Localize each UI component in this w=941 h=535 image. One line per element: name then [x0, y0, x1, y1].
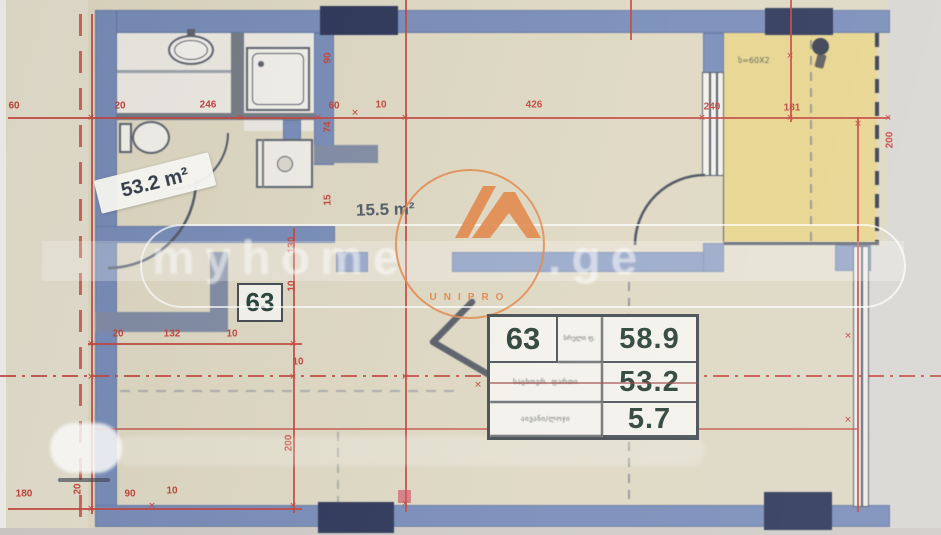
dimension-label: 60	[328, 101, 339, 112]
table-balcony-area-value: 5.7	[603, 403, 696, 437]
dimension-label: 74	[323, 121, 334, 132]
tick-mark: ✕	[289, 339, 297, 350]
dimension-labels: 6020246601042624018190741513010200201321…	[0, 0, 941, 535]
tick-mark: ✕	[87, 372, 95, 383]
tick-mark: ✕	[236, 113, 244, 124]
table-strike-line	[489, 382, 697, 384]
dimension-label: 90	[323, 52, 334, 63]
table-unit-sublabel: სრული ფ.	[558, 317, 603, 363]
dimension-label: 200	[885, 132, 896, 149]
dimension-label: 180	[16, 489, 33, 500]
table-total-area-value: 58.9	[603, 317, 696, 363]
table-unit-number: 63	[490, 317, 558, 363]
tick-mark: ✕	[87, 113, 95, 124]
tick-mark: ✕	[314, 113, 322, 124]
dimension-label: 426	[526, 100, 543, 111]
tick-mark: ✕	[401, 372, 409, 383]
area-table: 63 სრული ფ. 58.9 საცხოვრ. ფართი 53.2 აივ…	[487, 314, 699, 440]
tick-mark: ✕	[884, 113, 892, 124]
dimension-label: 60	[8, 101, 19, 112]
tick-mark: ✕	[289, 501, 297, 512]
tick-mark: ✕	[401, 113, 409, 124]
tick-mark: ✕	[351, 108, 359, 119]
tick-mark: ✕	[698, 113, 706, 124]
tick-mark: ✕	[786, 113, 794, 124]
dimension-label: 10	[375, 100, 386, 111]
dimension-label: 200	[284, 435, 295, 452]
dimension-label: 20	[114, 101, 125, 112]
dimension-label: 10	[166, 486, 177, 497]
tick-mark: ✕	[474, 380, 482, 391]
tick-mark: ✕	[87, 339, 95, 350]
dimension-label: 10	[292, 357, 303, 368]
tick-mark: ✕	[844, 331, 852, 342]
tick-mark: ✕	[87, 504, 95, 515]
table-balcony-area-label: აივანი/ლოჯი	[490, 403, 603, 437]
hand-underline-mark	[58, 478, 110, 482]
dimension-label: 240	[704, 102, 721, 113]
dimension-label: 246	[200, 100, 217, 111]
dimension-label: 15	[323, 194, 334, 205]
dimension-label: 10	[226, 329, 237, 340]
tick-mark: ✕	[401, 499, 409, 510]
tick-mark: ✕	[289, 372, 297, 383]
tick-mark: ✕	[786, 51, 794, 62]
dimension-label: 90	[124, 489, 135, 500]
tick-mark: ✕	[844, 415, 852, 426]
tick-mark: ✕	[148, 501, 156, 512]
dimension-label: 130	[287, 237, 298, 254]
dimension-label: 20	[73, 483, 84, 494]
tick-mark: ✕	[854, 119, 862, 130]
dimension-label: 20	[112, 329, 123, 340]
dimension-label: 132	[164, 329, 181, 340]
floor-plan-photo: 53.2 m² 15.5 m² 63 ს=60X2 60202466010426…	[0, 0, 941, 535]
dimension-label: 10	[287, 280, 298, 291]
